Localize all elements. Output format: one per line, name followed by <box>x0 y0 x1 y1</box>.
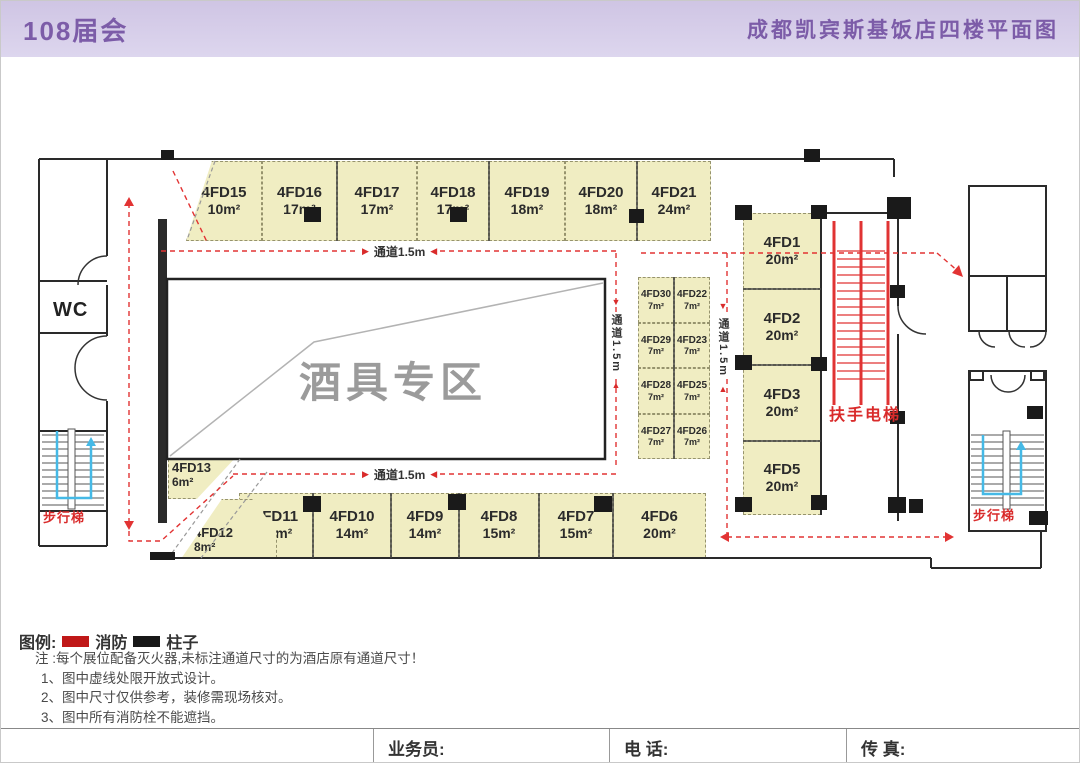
booth-4fd28: 4FD287m² <box>638 368 674 414</box>
aisle-arrowheads <box>124 197 963 542</box>
header-bar: 108届会 成都凯宾斯基饭店四楼平面图 <box>1 1 1080 57</box>
column-pillar <box>811 495 827 510</box>
booth-4fd8: 4FD815m² <box>459 493 539 558</box>
column-pillar <box>161 150 174 160</box>
column-pillar <box>1029 511 1048 525</box>
booth-4fd2: 4FD220m² <box>743 289 821 365</box>
booth-4fd29: 4FD297m² <box>638 323 674 368</box>
column-pillar <box>890 285 905 298</box>
column-pillar <box>909 499 923 513</box>
phone-cell: 电 话: <box>609 729 846 763</box>
wc-label: WC <box>53 299 88 322</box>
booth-4fd13: 4FD13 6m² <box>168 459 240 499</box>
arrow-right-icon: ▶ <box>362 246 369 257</box>
stairs-left-icon <box>42 429 104 509</box>
column-pillar <box>150 552 175 560</box>
column-pillar <box>303 496 321 512</box>
escalator-label: 扶手电梯 <box>829 401 901 425</box>
note-item: 2、图中尺寸仅供参考，装修需现场核对。 <box>41 688 424 708</box>
column-pillar <box>450 207 467 222</box>
notes: 注 :每个展位配备灭火器,未标注通道尺寸的为酒店原有通道尺寸！ 1、图中虚线处限… <box>41 649 424 727</box>
booth-4fd19: 4FD1918m² <box>489 161 565 241</box>
column-pillar <box>304 207 321 222</box>
page: 108届会 成都凯宾斯基饭店四楼平面图 <box>0 0 1080 763</box>
note-intro: 注 :每个展位配备灭火器,未标注通道尺寸的为酒店原有通道尺寸！ <box>35 649 424 669</box>
booth-4fd3: 4FD320m² <box>743 365 821 441</box>
booth-4fd15: 4FD1510m² <box>186 161 262 241</box>
aisle-label-bottom: ▶ 通道1.5m ◀ <box>359 466 440 483</box>
contact-strip: 业务员: 电 话: 传 真: <box>1 728 1080 763</box>
column-pillar <box>887 197 911 219</box>
arrow-up-icon: ▲ <box>612 380 621 390</box>
arrow-left-icon: ◀ <box>430 469 437 480</box>
escalator-icon <box>834 221 888 405</box>
aisle-label-left-vertical: ▼ 通道1.5m ▲ <box>604 297 628 390</box>
column-pillar <box>735 205 752 220</box>
arrow-left-icon: ◀ <box>430 246 437 257</box>
booth-4fd22: 4FD227m² <box>674 277 710 323</box>
arrow-down-icon: ▼ <box>719 301 728 311</box>
booth-4fd1: 4FD120m² <box>743 213 821 289</box>
wine-zone-label: 酒具专区 <box>299 349 487 410</box>
booth-4fd25: 4FD257m² <box>674 368 710 414</box>
booth-4fd16: 4FD1617m² <box>262 161 337 241</box>
page-title: 成都凯宾斯基饭店四楼平面图 <box>747 14 1059 44</box>
booth-4fd5: 4FD520m² <box>743 441 821 515</box>
booth-4fd6: 4FD620m² <box>613 493 706 558</box>
column-pillar <box>811 357 827 371</box>
booth-4fd10: 4FD1014m² <box>313 493 391 558</box>
aisle-label-top: ▶ 通道1.5m ◀ <box>359 243 440 260</box>
column-pillar <box>1027 406 1043 419</box>
fax-cell: 传 真: <box>846 729 1080 763</box>
fire-swatch-icon <box>62 636 89 647</box>
pillar-swatch-icon <box>133 636 160 647</box>
stairs-left-label: 步行梯 <box>43 507 85 526</box>
stairs-right-label: 步行梯 <box>973 505 1015 524</box>
arrow-right-icon: ▶ <box>362 469 369 480</box>
column-pillar <box>735 497 752 512</box>
booth-4fd18: 4FD1817m² <box>417 161 489 241</box>
note-item: 3、图中所有消防栓不能遮挡。 <box>41 708 424 728</box>
column-pillar <box>594 496 612 512</box>
booth-4fd17: 4FD1717m² <box>337 161 417 241</box>
column-pillar <box>448 494 466 510</box>
salesperson-cell: 业务员: <box>373 729 609 763</box>
arrow-up-icon: ▲ <box>719 384 728 394</box>
contact-empty-cell <box>1 729 373 763</box>
booth-4fd26: 4FD267m² <box>674 414 710 459</box>
stairs-right-icon <box>971 431 1044 509</box>
aisle-label-right-vertical: ▼ 通道1.5m ▲ <box>711 301 735 394</box>
column-pillar <box>735 355 752 370</box>
column-pillar <box>811 205 827 219</box>
column-pillar <box>629 209 644 223</box>
booth-4fd20: 4FD2018m² <box>565 161 637 241</box>
arrow-down-icon: ▼ <box>612 297 621 307</box>
booth-4fd23: 4FD237m² <box>674 323 710 368</box>
note-item: 1、图中虚线处限开放式设计。 <box>41 669 424 689</box>
door-arcs <box>75 256 1046 400</box>
column-pillar <box>804 149 820 162</box>
booth-4fd27: 4FD277m² <box>638 414 674 459</box>
exhibition-title: 108届会 <box>23 11 128 48</box>
column-pillar <box>888 497 906 513</box>
booth-4fd21: 4FD2124m² <box>637 161 711 241</box>
booth-4fd30: 4FD307m² <box>638 277 674 323</box>
